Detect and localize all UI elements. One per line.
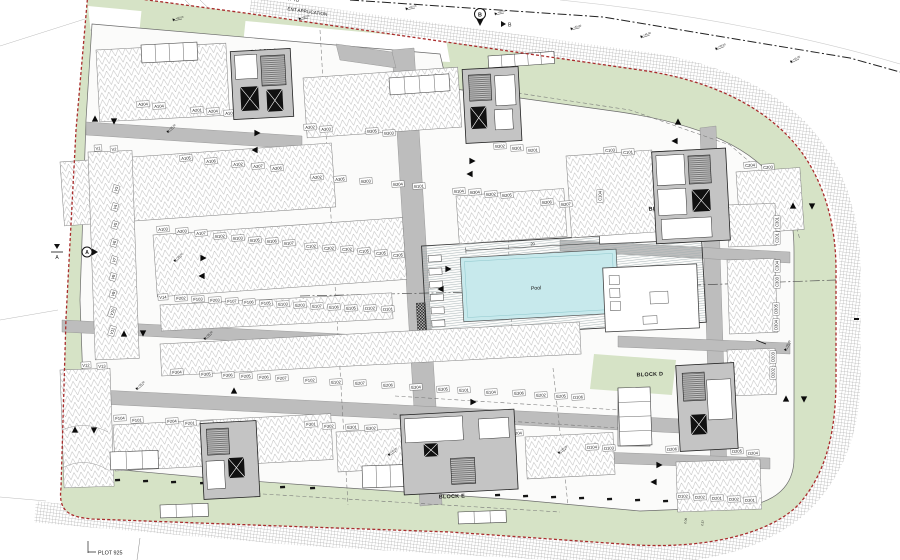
core-room bbox=[661, 217, 712, 240]
unit-label: F206 bbox=[258, 374, 271, 381]
unit-label: E306 bbox=[513, 390, 526, 397]
section-arrow-b-letter: B bbox=[508, 23, 512, 29]
core-room bbox=[656, 154, 686, 185]
unit-label: B304 bbox=[469, 188, 482, 195]
unit-label: C204 bbox=[744, 161, 757, 168]
unit-label: C304 bbox=[774, 260, 780, 272]
unit-label: F301 bbox=[305, 421, 318, 428]
wall-tick bbox=[523, 495, 528, 498]
unit-label: B102 bbox=[214, 232, 227, 239]
unit-label: B205 bbox=[501, 191, 514, 198]
unit-label: F305 bbox=[200, 371, 213, 378]
svg-text:B104: B104 bbox=[454, 188, 465, 194]
unit-label: F302 bbox=[323, 423, 336, 430]
pool-lounger bbox=[429, 268, 442, 275]
unit-label: E207 bbox=[354, 380, 367, 387]
wall-tick bbox=[280, 486, 285, 489]
svg-text:D206: D206 bbox=[667, 446, 678, 452]
pool-lounger bbox=[428, 255, 441, 262]
svg-text:F206: F206 bbox=[259, 374, 269, 380]
svg-text:B106: B106 bbox=[267, 238, 278, 244]
stair-icon bbox=[206, 428, 229, 455]
core-room bbox=[404, 416, 463, 443]
unit-label: C103 bbox=[604, 146, 617, 153]
pin-b-letter: B bbox=[478, 12, 482, 18]
svg-text:C301: C301 bbox=[775, 216, 780, 227]
unit-label: B204 bbox=[392, 180, 405, 187]
unit-label: F205 bbox=[240, 373, 253, 380]
cell-structure bbox=[160, 503, 208, 518]
svg-text:C205: C205 bbox=[376, 250, 387, 256]
svg-text:F204: F204 bbox=[167, 418, 177, 424]
unit-label: F304 bbox=[171, 369, 184, 376]
pool-lounger bbox=[432, 320, 445, 327]
wall-tick bbox=[663, 500, 668, 503]
svg-text:F301: F301 bbox=[306, 421, 316, 427]
unit-label: D204 bbox=[747, 450, 760, 457]
svg-text:C304: C304 bbox=[775, 260, 780, 271]
svg-text:A206: A206 bbox=[272, 165, 283, 171]
unit-label: F306 bbox=[222, 372, 235, 379]
svg-text:D304: D304 bbox=[774, 319, 779, 330]
unit-label: D201 bbox=[711, 495, 724, 502]
core-group bbox=[652, 148, 731, 244]
wall-tick bbox=[115, 479, 120, 482]
unit-label: A103 bbox=[157, 225, 170, 232]
pin-a-letter: A bbox=[85, 250, 89, 256]
svg-text:F207: F207 bbox=[277, 375, 287, 381]
unit-label: D102 bbox=[677, 493, 690, 500]
unit-label: B303 bbox=[383, 130, 396, 137]
svg-text:D302: D302 bbox=[729, 497, 740, 502]
unit-label: B105 bbox=[249, 236, 262, 243]
unit-label: B302 bbox=[494, 143, 507, 150]
unit-label: B201 bbox=[527, 147, 540, 154]
unit-label: V14 bbox=[158, 294, 168, 301]
core-group bbox=[200, 421, 260, 500]
unit-label: E301 bbox=[346, 424, 359, 431]
svg-text:E104: E104 bbox=[486, 389, 497, 395]
svg-text:V13: V13 bbox=[98, 363, 106, 368]
survey-mark bbox=[854, 318, 859, 320]
unit-label: C102 bbox=[305, 242, 318, 249]
unit-label: F104 bbox=[114, 415, 127, 422]
svg-text:B105: B105 bbox=[250, 237, 261, 243]
unit-label: A202 bbox=[311, 173, 324, 180]
unit-label: D202 bbox=[694, 494, 707, 501]
svg-text:D205: D205 bbox=[732, 448, 743, 454]
parking-stall-band bbox=[727, 258, 778, 334]
cell-structure bbox=[141, 42, 198, 63]
plan-canvas: 20 Pool A304A104A201A204A101A302A303B305… bbox=[0, 0, 900, 560]
wall-tick bbox=[171, 481, 176, 484]
core-room bbox=[707, 379, 733, 420]
unit-label: B107 bbox=[283, 239, 296, 246]
svg-text:F102: F102 bbox=[305, 377, 315, 383]
svg-text:A203: A203 bbox=[177, 228, 188, 234]
unit-label: F202 bbox=[175, 295, 188, 302]
svg-text:C101: C101 bbox=[623, 149, 634, 155]
unit-label: V2 bbox=[110, 146, 118, 153]
svg-text:C204: C204 bbox=[745, 162, 756, 168]
svg-text:C305: C305 bbox=[393, 252, 404, 258]
svg-text:F302: F302 bbox=[324, 423, 334, 429]
unit-label: E107 bbox=[311, 303, 324, 310]
unit-label: A201 bbox=[191, 107, 204, 114]
parking-stall-band bbox=[566, 150, 658, 238]
svg-text:D201: D201 bbox=[712, 496, 723, 501]
svg-text:A204: A204 bbox=[208, 108, 219, 114]
svg-text:E304: E304 bbox=[411, 384, 422, 390]
unit-label: E206 bbox=[382, 382, 395, 389]
svg-text:B107: B107 bbox=[284, 240, 295, 246]
unit-label: A104 bbox=[153, 103, 166, 110]
svg-text:A303: A303 bbox=[321, 126, 332, 132]
unit-label: A203 bbox=[176, 227, 189, 234]
unit-label: D101 bbox=[382, 306, 395, 313]
core-room bbox=[206, 460, 225, 489]
unit-label: V12 bbox=[81, 362, 91, 369]
svg-text:D103: D103 bbox=[604, 445, 615, 451]
plot-label: PLOT 925 bbox=[98, 551, 122, 557]
parking-stall-band bbox=[727, 203, 776, 247]
unit-label: E105 bbox=[345, 305, 358, 312]
unit-label: A302 bbox=[304, 124, 317, 131]
svg-text:F104: F104 bbox=[115, 415, 125, 421]
svg-text:B201: B201 bbox=[528, 147, 539, 153]
svg-text:F103: F103 bbox=[193, 296, 203, 302]
unit-label: E305 bbox=[437, 386, 450, 393]
wall-tick bbox=[310, 487, 315, 490]
unit-label: F207 bbox=[276, 375, 289, 382]
core-room bbox=[658, 188, 687, 215]
svg-text:D202: D202 bbox=[771, 367, 776, 378]
unit-label: F101 bbox=[131, 417, 144, 424]
svg-text:C203: C203 bbox=[763, 164, 774, 170]
unit-label: B207 bbox=[560, 200, 573, 207]
unit-label: D106 bbox=[572, 394, 585, 401]
svg-text:D204: D204 bbox=[748, 450, 759, 456]
svg-text:B101: B101 bbox=[414, 183, 425, 189]
unit-label: D301 bbox=[744, 497, 757, 504]
svg-text:C103: C103 bbox=[605, 147, 616, 153]
unit-label: F106 bbox=[243, 299, 256, 306]
svg-text:F106: F106 bbox=[244, 299, 254, 305]
unit-label: D104 bbox=[586, 444, 599, 451]
wall-tick bbox=[551, 496, 556, 499]
parking-stall-band bbox=[60, 368, 114, 488]
svg-text:V14: V14 bbox=[159, 294, 167, 299]
svg-text:A104: A104 bbox=[154, 103, 165, 109]
svg-text:F305: F305 bbox=[201, 371, 211, 377]
unit-label: D206 bbox=[666, 446, 679, 453]
unit-label: C201 bbox=[774, 232, 780, 244]
unit-label: C302 bbox=[341, 245, 354, 252]
core-room bbox=[234, 54, 257, 79]
svg-text:E302: E302 bbox=[366, 425, 377, 431]
svg-text:A304: A304 bbox=[138, 101, 149, 107]
svg-text:F101: F101 bbox=[132, 417, 142, 423]
svg-text:F306: F306 bbox=[223, 372, 233, 378]
unit-label: B301 bbox=[511, 145, 524, 152]
unit-label: D304 bbox=[773, 319, 779, 331]
unit-label: C301 bbox=[774, 216, 780, 228]
svg-text:D305: D305 bbox=[774, 303, 779, 314]
svg-text:B207: B207 bbox=[561, 201, 572, 207]
unit-label: A207 bbox=[252, 162, 265, 169]
svg-text:B303: B303 bbox=[384, 130, 395, 136]
svg-text:A102: A102 bbox=[233, 161, 244, 167]
core-room bbox=[495, 75, 517, 106]
svg-text:A201: A201 bbox=[192, 107, 203, 113]
svg-text:B202: B202 bbox=[486, 191, 497, 197]
parking-stall-band bbox=[525, 432, 615, 479]
svg-text:F201: F201 bbox=[185, 420, 195, 426]
svg-text:E206: E206 bbox=[383, 382, 394, 388]
unit-label: F204 bbox=[166, 418, 179, 425]
svg-text:B304: B304 bbox=[470, 189, 481, 195]
stair-icon bbox=[261, 55, 287, 86]
svg-text:F304: F304 bbox=[172, 369, 182, 375]
unit-label: F201 bbox=[184, 420, 197, 427]
core-group bbox=[462, 67, 522, 144]
unit-label: B206 bbox=[541, 198, 554, 205]
wall-tick bbox=[635, 499, 640, 502]
unit-label: C101 bbox=[622, 148, 635, 155]
svg-text:C303: C303 bbox=[775, 276, 780, 287]
unit-label: A305 bbox=[334, 175, 347, 182]
unit-label: B203 bbox=[360, 177, 373, 184]
unit-label: B202 bbox=[485, 190, 498, 197]
svg-text:B203: B203 bbox=[361, 178, 372, 184]
unit-label: C104 bbox=[597, 190, 603, 202]
wall-tick bbox=[143, 480, 148, 483]
stair-icon bbox=[450, 457, 475, 484]
svg-text:D106: D106 bbox=[573, 394, 584, 400]
svg-text:E102: E102 bbox=[331, 379, 342, 385]
unit-label: F107 bbox=[226, 298, 239, 305]
cell-structure bbox=[618, 387, 652, 446]
svg-text:E202: E202 bbox=[536, 392, 547, 398]
core-group bbox=[676, 363, 738, 452]
svg-text:B305: B305 bbox=[367, 128, 378, 134]
unit-label: E101 bbox=[458, 387, 471, 394]
wall-tick bbox=[495, 494, 500, 497]
svg-text:A103: A103 bbox=[158, 226, 169, 232]
svg-text:F202: F202 bbox=[176, 295, 186, 301]
unit-label: C202 bbox=[323, 244, 336, 251]
svg-text:C102: C102 bbox=[306, 243, 317, 249]
svg-text:C302: C302 bbox=[342, 246, 353, 252]
cell-structure bbox=[110, 450, 159, 470]
unit-label: C205 bbox=[375, 249, 388, 256]
svg-text:A202: A202 bbox=[312, 174, 323, 180]
pool-label: Pool bbox=[531, 285, 542, 292]
unit-label: A204 bbox=[207, 108, 220, 115]
svg-text:F203: F203 bbox=[210, 297, 220, 303]
svg-text:E306: E306 bbox=[514, 390, 525, 396]
svg-text:E203: E203 bbox=[295, 302, 306, 308]
unit-label: E103 bbox=[277, 301, 290, 308]
pool-lounger bbox=[431, 307, 444, 314]
svg-text:C104: C104 bbox=[598, 190, 603, 201]
svg-text:E101: E101 bbox=[459, 387, 470, 393]
unit-label: B305 bbox=[366, 128, 379, 135]
svg-text:D104: D104 bbox=[587, 444, 598, 450]
unit-label: A105 bbox=[180, 154, 193, 161]
pool-lounger bbox=[430, 281, 443, 288]
unit-label: E202 bbox=[535, 392, 548, 399]
site-plan-drawing: 20 Pool A304A104A201A204A101A302A303B305… bbox=[0, 0, 900, 560]
unit-label: E302 bbox=[365, 425, 378, 432]
unit-label: D305 bbox=[773, 303, 779, 315]
unit-label: V1 bbox=[94, 145, 102, 152]
svg-text:A105: A105 bbox=[181, 155, 192, 161]
unit-label: A102 bbox=[232, 160, 245, 167]
core-group bbox=[230, 48, 293, 119]
unit-label: E106 bbox=[328, 304, 341, 311]
unit-label: F203 bbox=[209, 297, 222, 304]
unit-label: A107 bbox=[195, 229, 208, 236]
svg-text:D202: D202 bbox=[695, 495, 706, 500]
unit-label: E205 bbox=[555, 393, 568, 400]
unit-label: A304 bbox=[137, 101, 150, 108]
svg-text:B103: B103 bbox=[233, 235, 244, 241]
wall-tick bbox=[579, 497, 584, 500]
parking-stall-band bbox=[676, 459, 762, 512]
unit-label: V13 bbox=[97, 363, 107, 370]
unit-label: E104 bbox=[485, 389, 498, 396]
svg-text:E205: E205 bbox=[556, 393, 567, 399]
svg-text:F105: F105 bbox=[261, 300, 271, 306]
svg-text:B102: B102 bbox=[215, 233, 226, 239]
svg-text:D102: D102 bbox=[678, 494, 689, 499]
svg-text:C105: C105 bbox=[359, 248, 370, 254]
svg-text:B206: B206 bbox=[542, 199, 553, 205]
svg-text:C202: C202 bbox=[324, 245, 335, 251]
core-group bbox=[400, 409, 518, 495]
svg-text:B204: B204 bbox=[393, 181, 404, 187]
core-room bbox=[478, 417, 509, 439]
svg-text:D102: D102 bbox=[365, 305, 376, 311]
svg-text:A106: A106 bbox=[206, 158, 217, 164]
unit-label: C203 bbox=[762, 163, 775, 170]
svg-text:E103: E103 bbox=[278, 301, 289, 307]
svg-text:C201: C201 bbox=[775, 232, 780, 243]
unit-label: E304 bbox=[410, 384, 423, 391]
unit-label: B106 bbox=[266, 237, 279, 244]
svg-text:A302: A302 bbox=[305, 124, 316, 130]
svg-text:A305: A305 bbox=[335, 176, 346, 182]
unit-label: D202 bbox=[770, 367, 776, 379]
unit-label: A206 bbox=[271, 164, 284, 171]
unit-label: C303 bbox=[774, 276, 780, 288]
svg-text:E106: E106 bbox=[329, 304, 340, 310]
unit-label: D103 bbox=[603, 445, 616, 452]
unit-label: B103 bbox=[232, 234, 245, 241]
unit-label: E203 bbox=[294, 302, 307, 309]
unit-label: D203 bbox=[770, 351, 776, 363]
svg-text:E105: E105 bbox=[346, 305, 357, 311]
unit-label: A303 bbox=[320, 126, 333, 133]
unit-label: C105 bbox=[358, 247, 371, 254]
unit-label: A106 bbox=[205, 157, 218, 164]
svg-text:B301: B301 bbox=[512, 145, 523, 151]
stair-icon bbox=[682, 372, 705, 401]
unit-label: C305 bbox=[392, 251, 405, 258]
block-label: BLOCK E bbox=[439, 494, 466, 501]
unit-label: F102 bbox=[304, 377, 317, 384]
stair-icon bbox=[468, 74, 491, 101]
unit-label: F105 bbox=[260, 300, 273, 307]
svg-text:E107: E107 bbox=[312, 303, 323, 309]
svg-text:E305: E305 bbox=[438, 386, 449, 392]
planter-checker-strip bbox=[416, 303, 427, 333]
svg-text:A207: A207 bbox=[253, 163, 264, 169]
svg-text:F107: F107 bbox=[227, 298, 237, 304]
wall-tick bbox=[607, 498, 612, 501]
pool-lounger bbox=[430, 294, 443, 301]
svg-text:V12: V12 bbox=[82, 362, 90, 367]
stair-icon bbox=[688, 155, 711, 184]
unit-label: D302 bbox=[728, 496, 741, 503]
unit-label: B101 bbox=[413, 182, 426, 189]
svg-text:A107: A107 bbox=[196, 230, 207, 236]
svg-text:F205: F205 bbox=[241, 373, 251, 379]
cell-structure bbox=[458, 510, 506, 524]
unit-label: D102 bbox=[364, 305, 377, 312]
svg-text:E301: E301 bbox=[347, 424, 358, 430]
unit-label: E102 bbox=[330, 379, 343, 386]
core-room bbox=[494, 109, 513, 130]
block-label: BLOCK D bbox=[637, 372, 664, 379]
svg-text:D203: D203 bbox=[771, 351, 776, 362]
unit-label: F103 bbox=[192, 296, 205, 303]
unit-label: B104 bbox=[453, 187, 466, 194]
svg-text:D101: D101 bbox=[383, 306, 394, 312]
svg-text:B205: B205 bbox=[502, 192, 513, 198]
svg-text:D301: D301 bbox=[745, 498, 756, 503]
svg-text:E207: E207 bbox=[355, 380, 366, 386]
svg-text:B302: B302 bbox=[495, 143, 506, 149]
